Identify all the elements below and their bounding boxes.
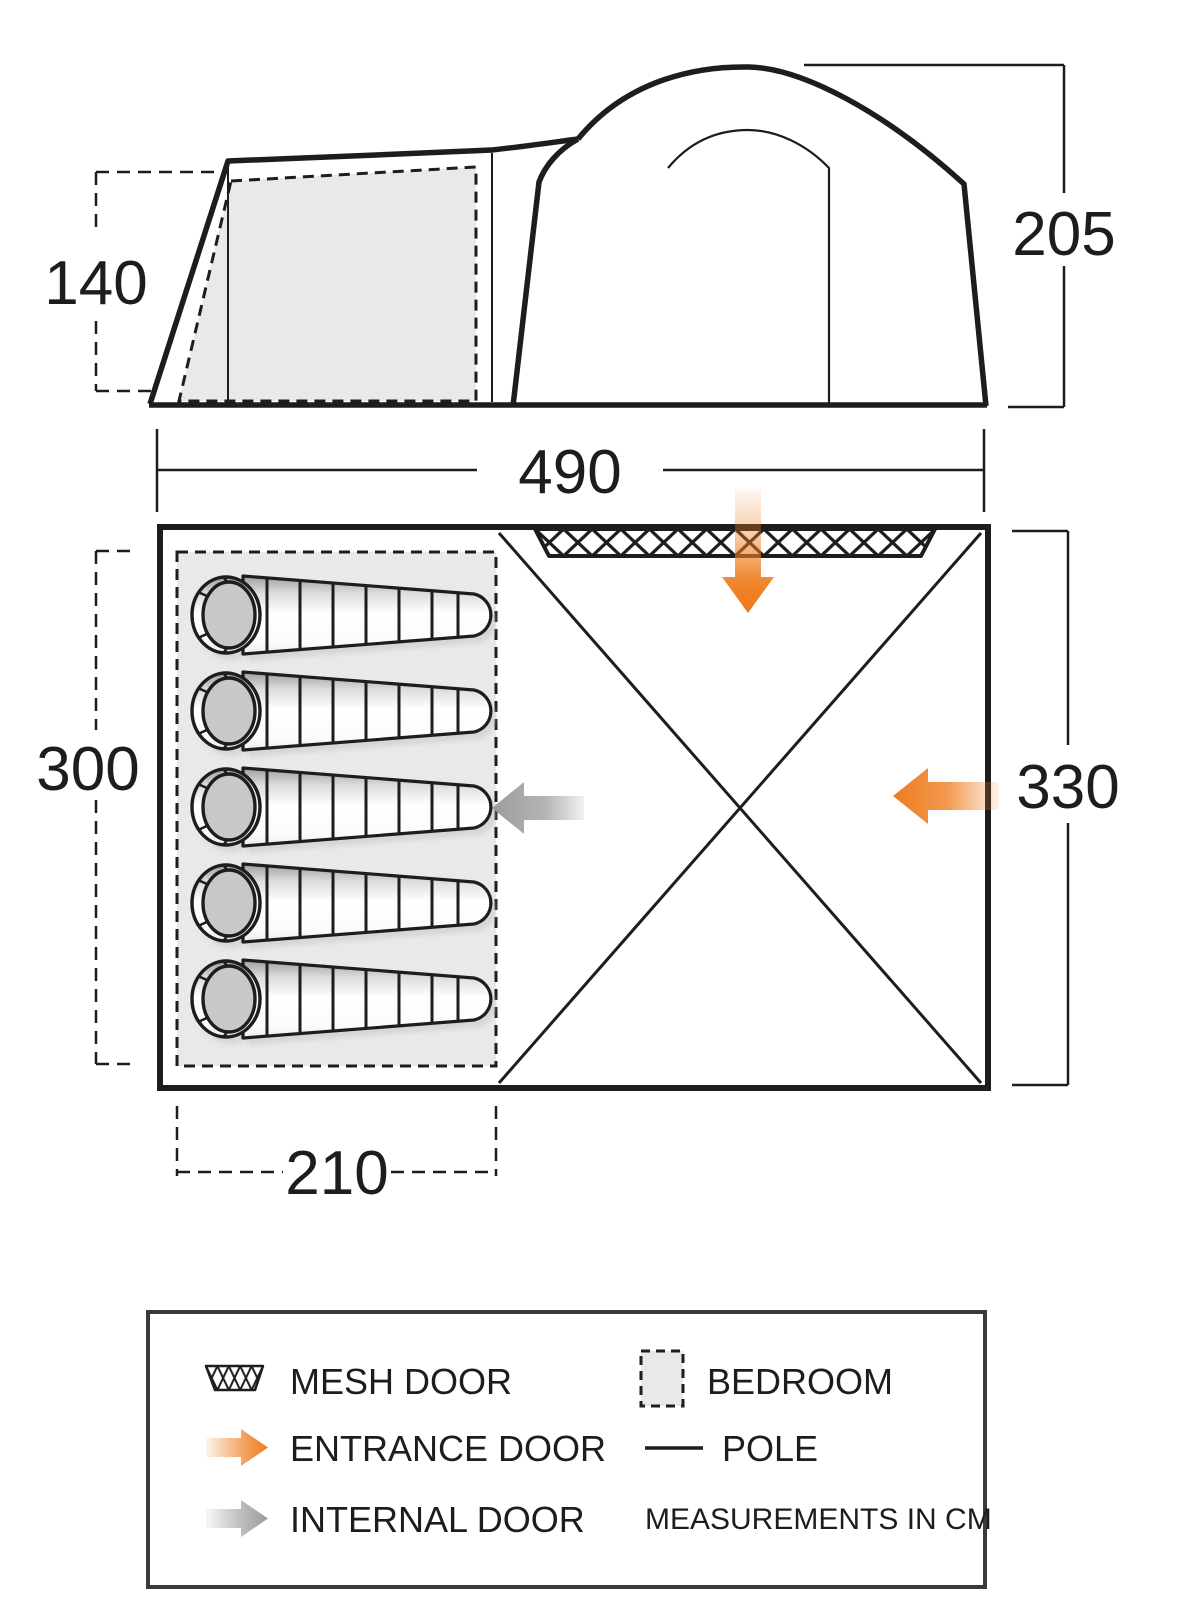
dimension-label-205: 205 [1012,200,1115,269]
dimension-label-330: 330 [1016,753,1119,822]
legend-label-bedroom: BEDROOM [707,1361,893,1402]
dome-outline [578,67,986,406]
mesh-swatch-icon [206,1366,263,1390]
bedroom-swatch-icon [641,1351,683,1406]
side-elevation-view [149,67,987,406]
dimension-bedroom-depth [96,551,134,1064]
floor-plan [160,489,999,1088]
bedroom-side-panel [179,167,476,401]
door-arch-line [668,130,829,404]
legend-box: MESH DOOR BEDROOM ENTRANCE DOOR POLE INT… [148,1312,992,1587]
dimension-label-140: 140 [44,249,147,318]
dimension-label-300: 300 [36,735,139,804]
legend-measurements-note: MEASUREMENTS IN CM [645,1503,992,1536]
dome-left-flank [513,139,578,406]
dimension-label-490: 490 [518,438,621,507]
tent-dimension-diagram: 140 205 490 300 [0,0,1186,1600]
legend-label-pole: POLE [722,1428,818,1469]
legend-label-mesh-door: MESH DOOR [290,1361,512,1402]
legend-label-internal-door: INTERNAL DOOR [290,1499,585,1540]
dimension-label-210: 210 [285,1139,388,1208]
diagram-canvas: 140 205 490 300 [0,0,1186,1600]
legend-label-entrance-door: ENTRANCE DOOR [290,1428,606,1469]
